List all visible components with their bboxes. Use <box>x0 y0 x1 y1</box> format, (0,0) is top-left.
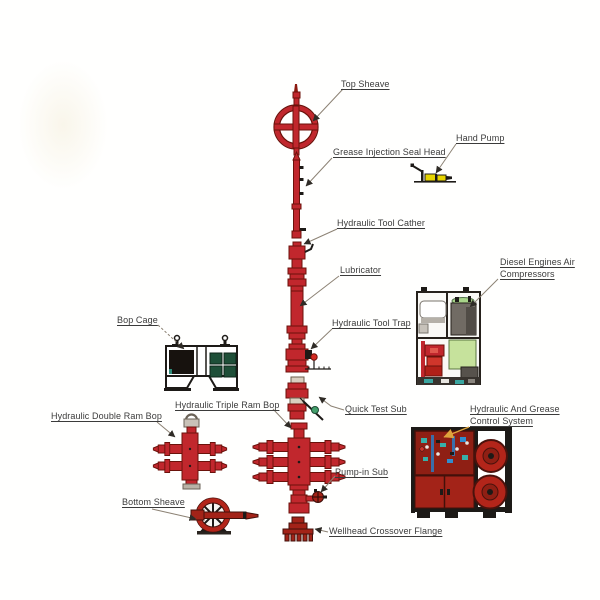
label-pump-in-sub: Pump-in Sub <box>335 467 388 477</box>
lubricator-drawing <box>287 286 307 344</box>
label-lubricator: Lubricator <box>340 265 381 275</box>
label-hydraulic-and-grease-control-system: Hydraulic And Grease Control System <box>470 404 588 427</box>
label-grease-injection-seal-head: Grease Injection Seal Head <box>333 147 446 157</box>
label-top-sheave: Top Sheave <box>341 79 390 89</box>
bottom-sheave-drawing <box>191 498 258 535</box>
hydraulic-double-ram-bop-drawing <box>153 415 226 489</box>
hydraulic-tool-catcher-drawing <box>288 242 313 286</box>
label-hydraulic-triple-ram-bop: Hydraulic Triple Ram Bop <box>175 400 279 410</box>
grease-control-unit-drawing <box>411 427 512 518</box>
label-hydraulic-tool-catcher: Hydraulic Tool Cather <box>337 218 425 228</box>
label-wellhead-crossover-flange: Wellhead Crossover Flange <box>329 526 442 536</box>
quick-test-sub-drawing <box>286 377 323 420</box>
diesel-air-compressors-drawing <box>417 287 480 385</box>
hydraulic-triple-ram-bop-drawing <box>253 423 345 495</box>
wellhead-crossover-flange-drawing <box>283 517 313 541</box>
grease-injection-seal-head-drawing <box>292 152 306 238</box>
label-hand-pump: Hand Pump <box>456 133 504 143</box>
top-sheave-drawing <box>274 84 318 155</box>
bop-cage-drawing <box>164 336 239 392</box>
label-bop-cage: Bop Cage <box>117 315 158 325</box>
label-hydraulic-double-ram-bop: Hydraulic Double Ram Bop <box>51 411 162 421</box>
rigup-diagram-svg <box>0 0 600 600</box>
label-hydraulic-tool-trap: Hydraulic Tool Trap <box>332 318 411 328</box>
label-bottom-sheave: Bottom Sheave <box>122 497 185 507</box>
hydraulic-tool-trap-drawing <box>286 344 331 372</box>
diagram-canvas: Top Sheave Grease Injection Seal Head Ha… <box>0 0 600 600</box>
label-quick-test-sub: Quick Test Sub <box>345 404 407 414</box>
label-diesel-engines-air-compressors: Diesel Engines Air Compressors <box>500 257 586 280</box>
hand-pump-drawing <box>411 164 457 183</box>
